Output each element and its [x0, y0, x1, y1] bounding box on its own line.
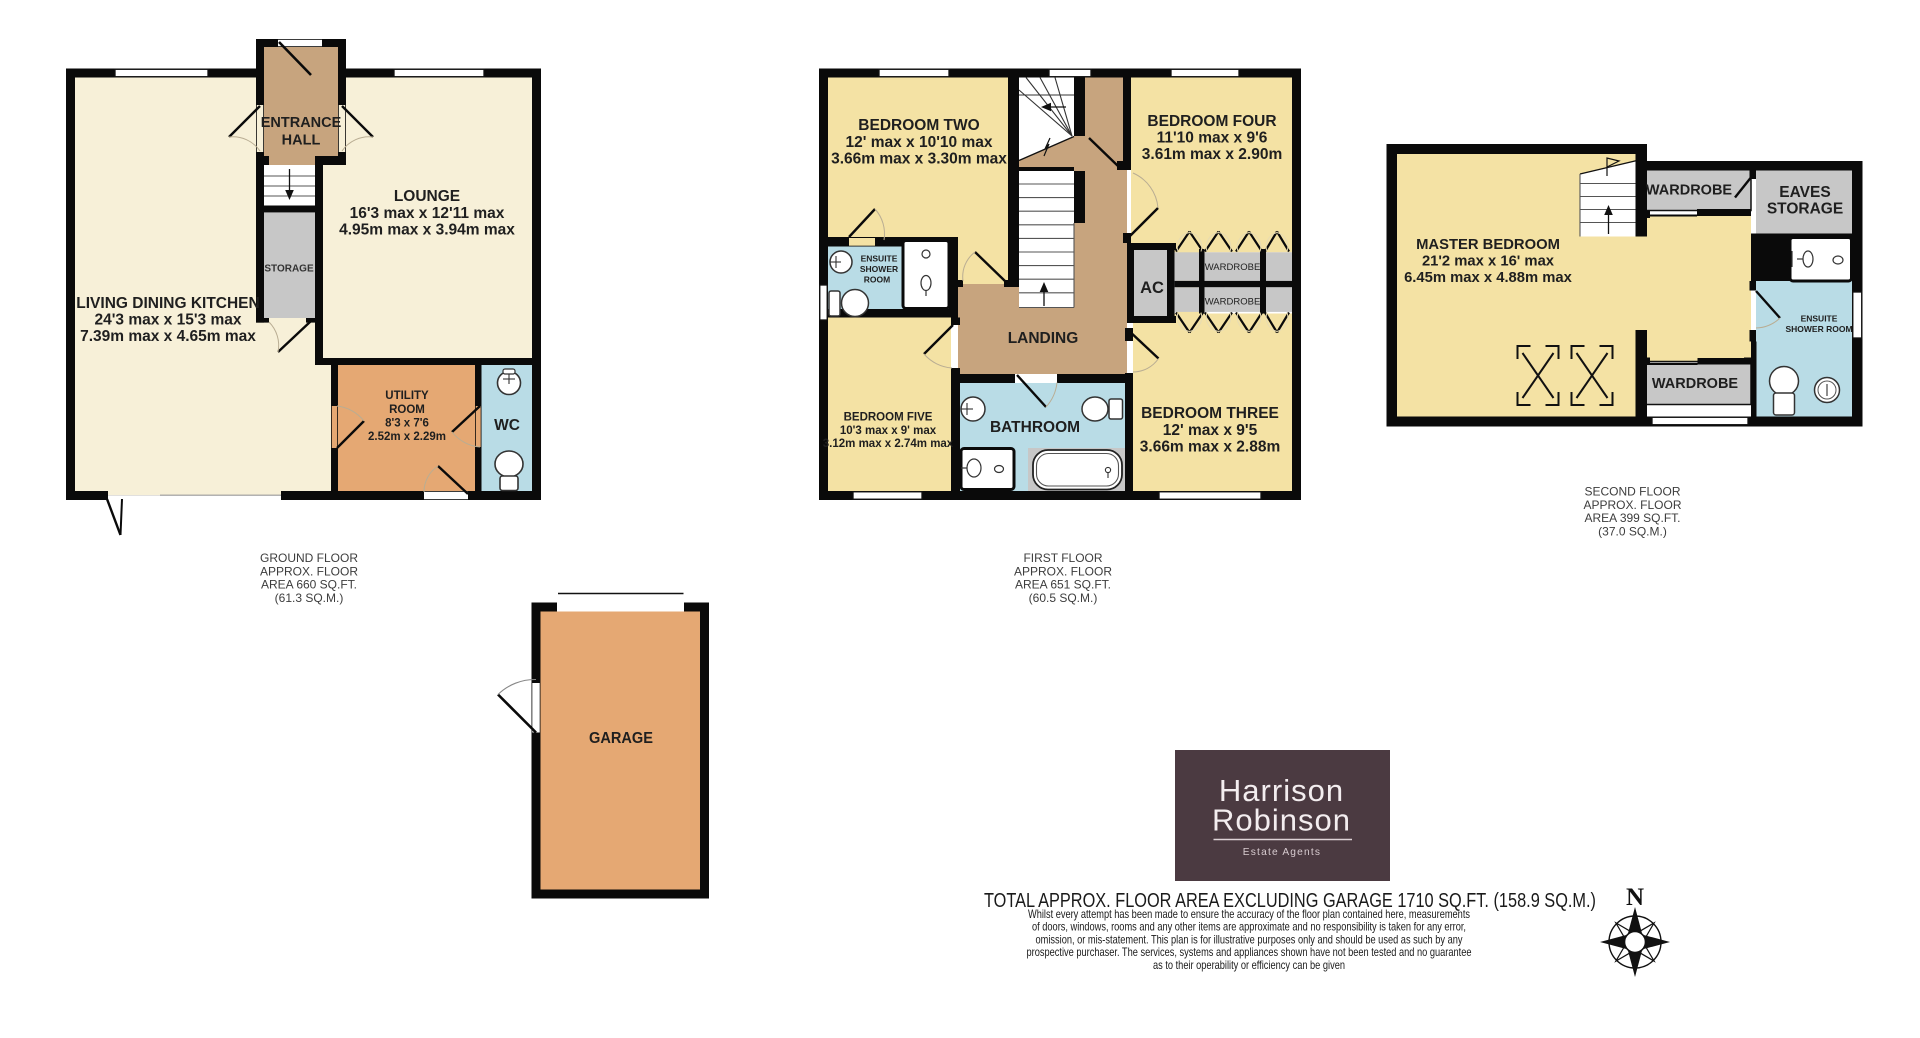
svg-text:6.45m max x 4.88m max: 6.45m max x 4.88m max [1404, 270, 1573, 286]
svg-text:APPROX. FLOOR: APPROX. FLOOR [1583, 498, 1681, 512]
svg-text:APPROX. FLOOR: APPROX. FLOOR [1014, 564, 1112, 578]
svg-text:GROUND FLOOR: GROUND FLOOR [260, 551, 358, 565]
svg-text:10'3 max x 9' max: 10'3 max x 9' max [840, 425, 937, 437]
svg-text:EAVES: EAVES [1779, 184, 1830, 201]
svg-text:N: N [1626, 884, 1644, 911]
svg-text:FIRST FLOOR: FIRST FLOOR [1023, 551, 1102, 565]
svg-text:ENSUITE: ENSUITE [861, 254, 898, 264]
svg-text:ENSUITE: ENSUITE [1801, 314, 1838, 324]
svg-text:AC: AC [1140, 279, 1164, 297]
svg-text:AREA 399 SQ.FT.: AREA 399 SQ.FT. [1584, 511, 1680, 525]
svg-text:BEDROOM TWO: BEDROOM TWO [858, 117, 979, 134]
svg-text:Robinson: Robinson [1212, 803, 1351, 838]
svg-text:AREA 660 SQ.FT.: AREA 660 SQ.FT. [261, 578, 357, 592]
svg-text:Estate Agents: Estate Agents [1243, 847, 1321, 858]
svg-text:WARDROBE: WARDROBE [1205, 297, 1261, 308]
svg-text:2.52m x 2.29m: 2.52m x 2.29m [368, 431, 446, 443]
svg-text:4.95m max x 3.94m max: 4.95m max x 3.94m max [339, 222, 515, 239]
svg-text:WARDROBE: WARDROBE [1652, 376, 1739, 392]
svg-text:7.39m max x 4.65m max: 7.39m max x 4.65m max [80, 328, 256, 345]
svg-text:BEDROOM FOUR: BEDROOM FOUR [1147, 113, 1276, 130]
svg-text:APPROX. FLOOR: APPROX. FLOOR [260, 564, 358, 578]
svg-text:3.66m max x 3.30m max: 3.66m max x 3.30m max [831, 151, 1007, 168]
svg-text:21'2 max x 16' max: 21'2 max x 16' max [1422, 254, 1555, 270]
svg-text:11'10 max x 9'6: 11'10 max x 9'6 [1157, 130, 1268, 147]
svg-text:SHOWER: SHOWER [860, 264, 898, 274]
svg-text:SHOWER ROOM: SHOWER ROOM [1785, 324, 1852, 334]
svg-text:3.66m max x 2.88m: 3.66m max x 2.88m [1140, 439, 1280, 456]
svg-text:LIVING DINING KITCHEN: LIVING DINING KITCHEN [76, 295, 259, 312]
svg-text:BEDROOM FIVE: BEDROOM FIVE [844, 412, 933, 424]
svg-text:AREA 651 SQ.FT.: AREA 651 SQ.FT. [1015, 578, 1111, 592]
svg-text:STORAGE: STORAGE [264, 264, 314, 275]
svg-text:HALL: HALL [282, 133, 321, 149]
svg-text:LANDING: LANDING [1008, 330, 1079, 347]
svg-text:12' max x 10'10 max: 12' max x 10'10 max [846, 134, 993, 151]
svg-text:24'3 max x 15'3 max: 24'3 max x 15'3 max [95, 312, 242, 329]
svg-text:16'3 max x 12'11 max: 16'3 max x 12'11 max [350, 205, 505, 222]
svg-text:GARAGE: GARAGE [589, 730, 653, 747]
svg-text:12' max x 9'5: 12' max x 9'5 [1163, 422, 1258, 439]
svg-text:ROOM: ROOM [864, 275, 890, 285]
svg-text:8'3 x 7'6: 8'3 x 7'6 [385, 418, 429, 430]
svg-text:LOUNGE: LOUNGE [394, 188, 460, 205]
svg-text:STORAGE: STORAGE [1767, 201, 1843, 218]
svg-text:WARDROBE: WARDROBE [1646, 183, 1733, 199]
svg-text:UTILITY: UTILITY [385, 390, 429, 402]
svg-text:(60.5 SQ.M.): (60.5 SQ.M.) [1029, 591, 1098, 605]
svg-text:ROOM: ROOM [389, 404, 425, 416]
svg-text:MASTER BEDROOM: MASTER BEDROOM [1416, 237, 1560, 253]
svg-text:as to their operability or eff: as to their operability or efficiency ca… [1153, 958, 1345, 972]
svg-text:BATHROOM: BATHROOM [990, 419, 1080, 436]
svg-text:SECOND FLOOR: SECOND FLOOR [1584, 485, 1680, 499]
svg-text:WARDROBE: WARDROBE [1205, 262, 1261, 273]
svg-text:BEDROOM THREE: BEDROOM THREE [1141, 405, 1279, 422]
svg-text:(61.3 SQ.M.): (61.3 SQ.M.) [275, 591, 344, 605]
svg-text:3.61m max x 2.90m: 3.61m max x 2.90m [1142, 146, 1282, 163]
svg-text:3.12m max x 2.74m max: 3.12m max x 2.74m max [823, 438, 954, 450]
svg-text:ENTRANCE: ENTRANCE [261, 115, 342, 131]
svg-text:(37.0 SQ.M.): (37.0 SQ.M.) [1598, 524, 1667, 538]
svg-text:WC: WC [494, 417, 520, 434]
